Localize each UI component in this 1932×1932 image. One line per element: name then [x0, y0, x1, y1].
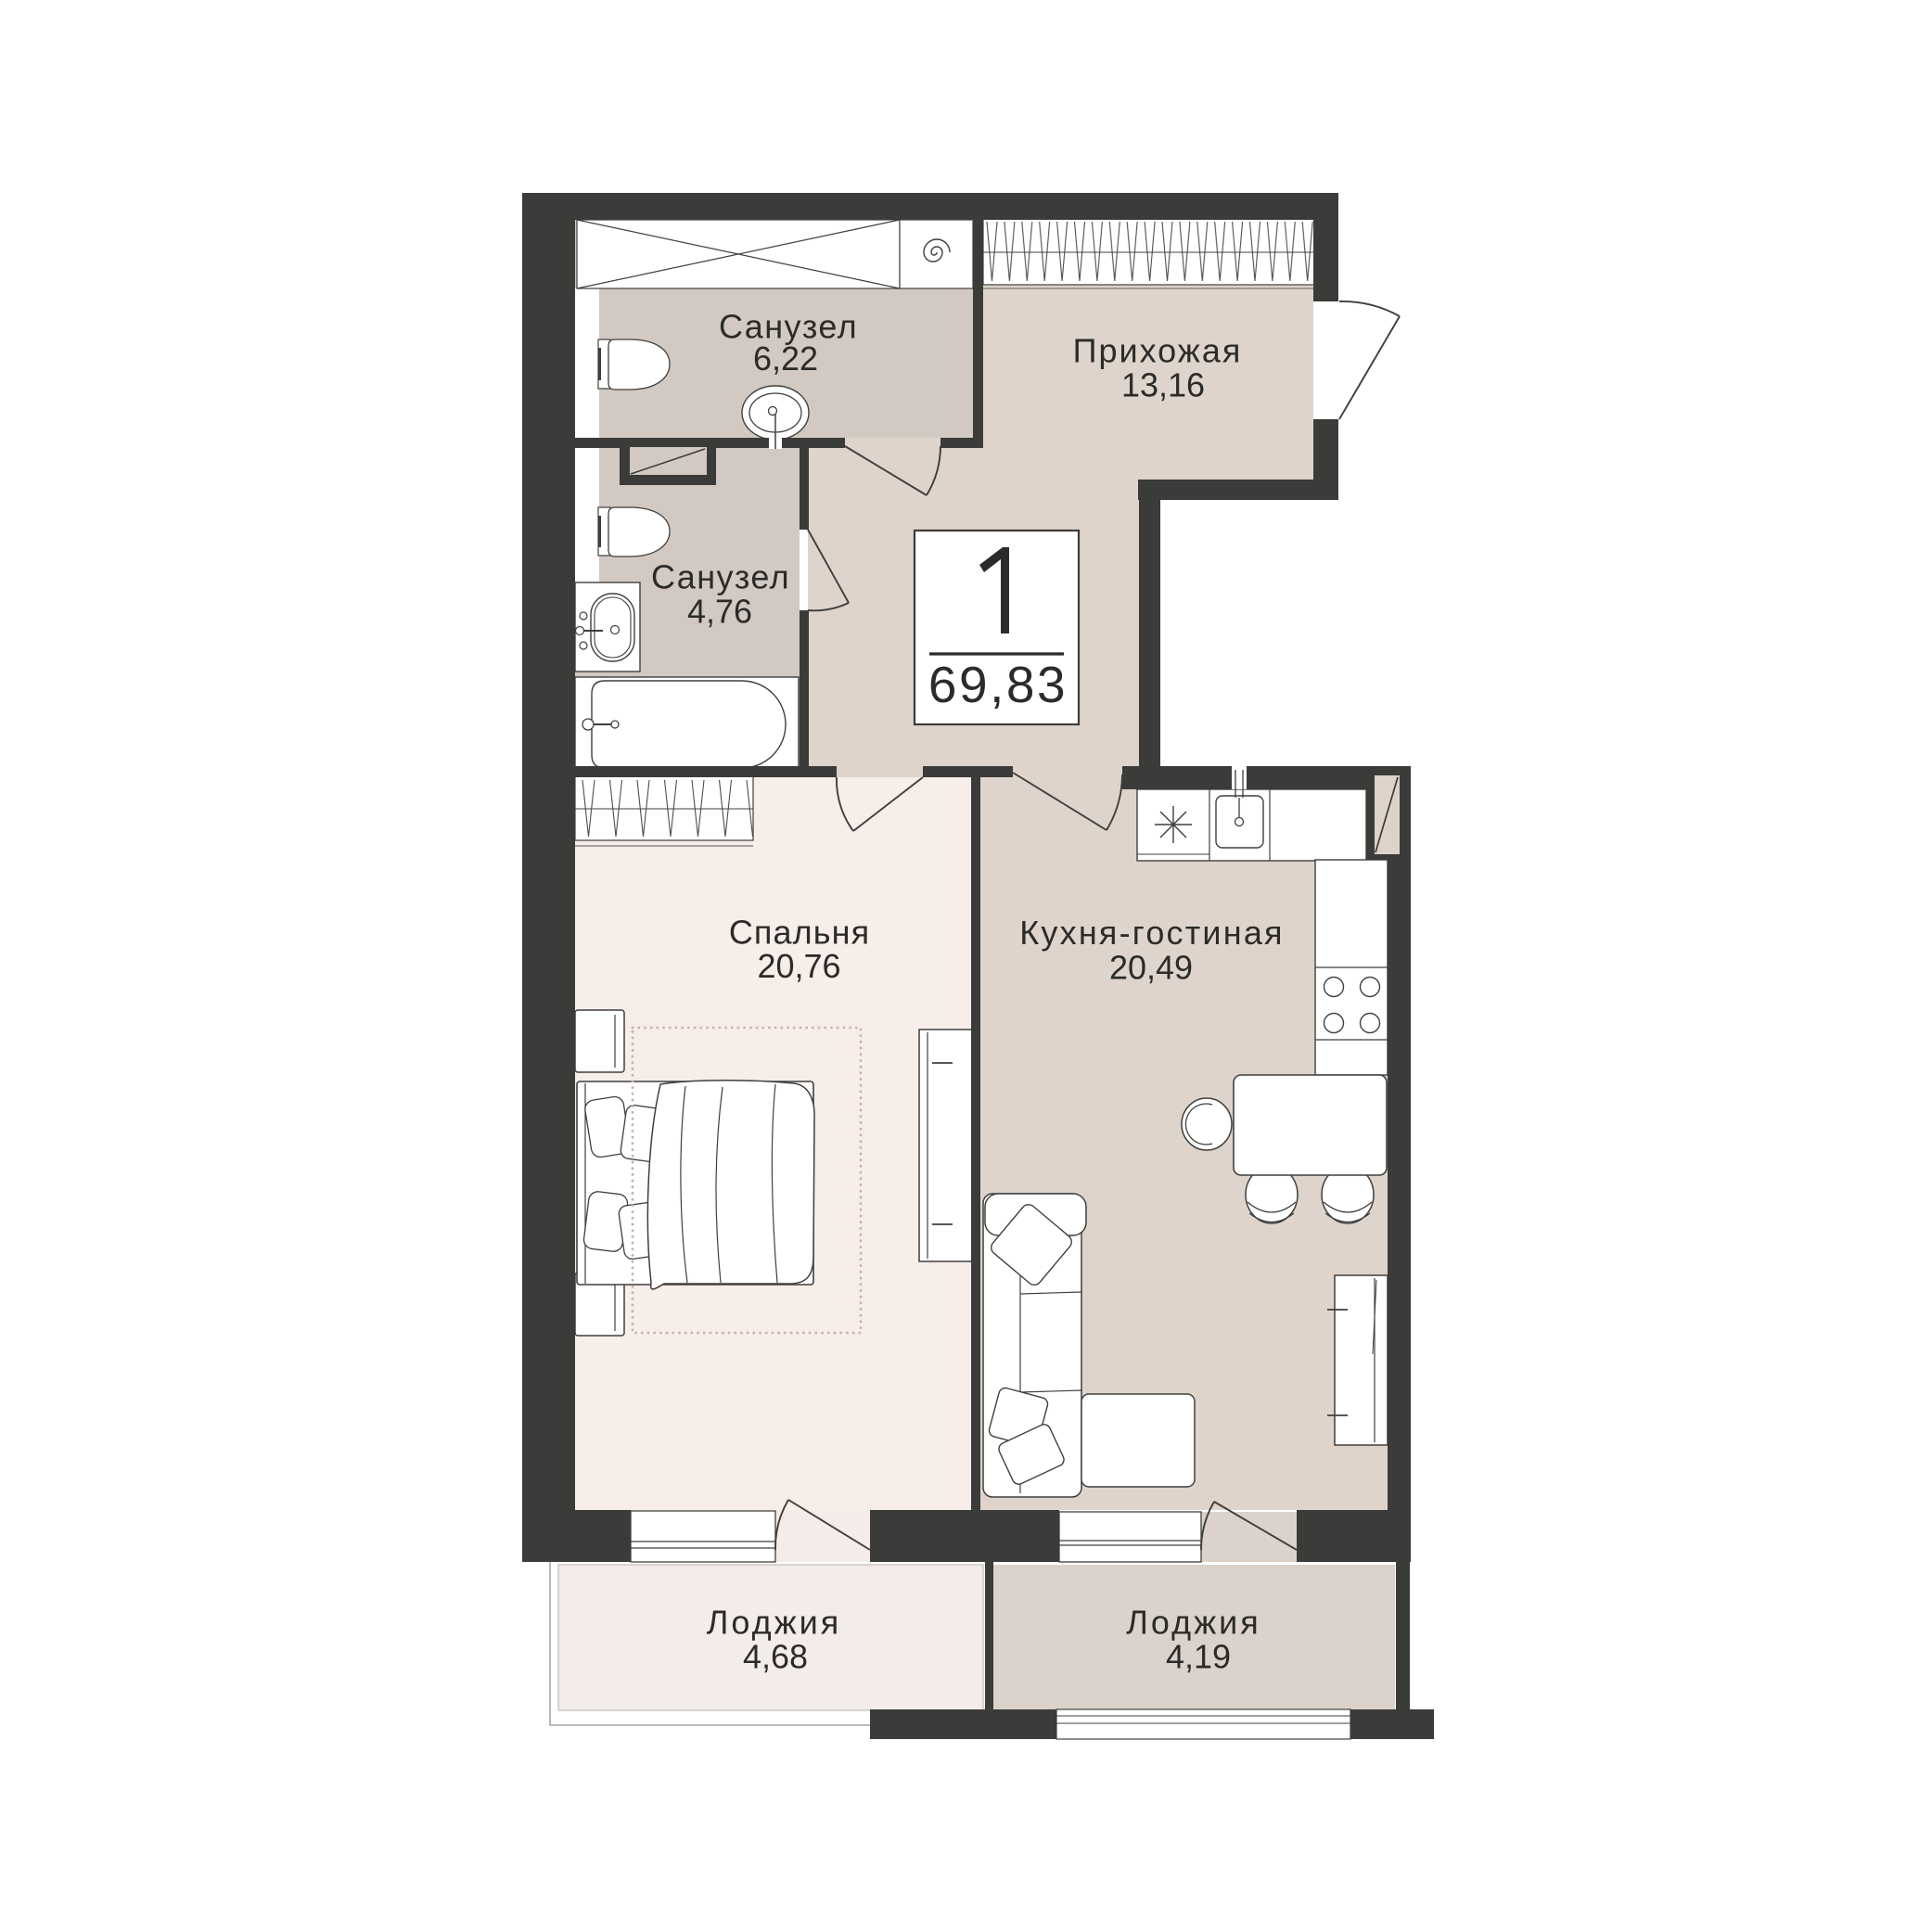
- svg-text:Санузел: Санузел: [651, 558, 790, 596]
- svg-text:Лоджия: Лоджия: [1126, 1604, 1261, 1642]
- svg-text:6,22: 6,22: [753, 339, 818, 377]
- svg-text:Кухня-гостиная: Кухня-гостиная: [1019, 914, 1285, 952]
- svg-text:Прихожая: Прихожая: [1073, 332, 1243, 370]
- svg-text:4,19: 4,19: [1166, 1638, 1231, 1676]
- svg-text:Лоджия: Лоджия: [707, 1604, 842, 1642]
- svg-text:20,49: 20,49: [1109, 949, 1193, 987]
- svg-text:Спальня: Спальня: [729, 914, 870, 952]
- svg-text:4,76: 4,76: [687, 593, 752, 631]
- svg-text:13,16: 13,16: [1121, 366, 1205, 404]
- svg-text:69,83: 69,83: [928, 656, 1068, 713]
- svg-text:4,68: 4,68: [743, 1638, 808, 1676]
- svg-text:20,76: 20,76: [757, 947, 840, 985]
